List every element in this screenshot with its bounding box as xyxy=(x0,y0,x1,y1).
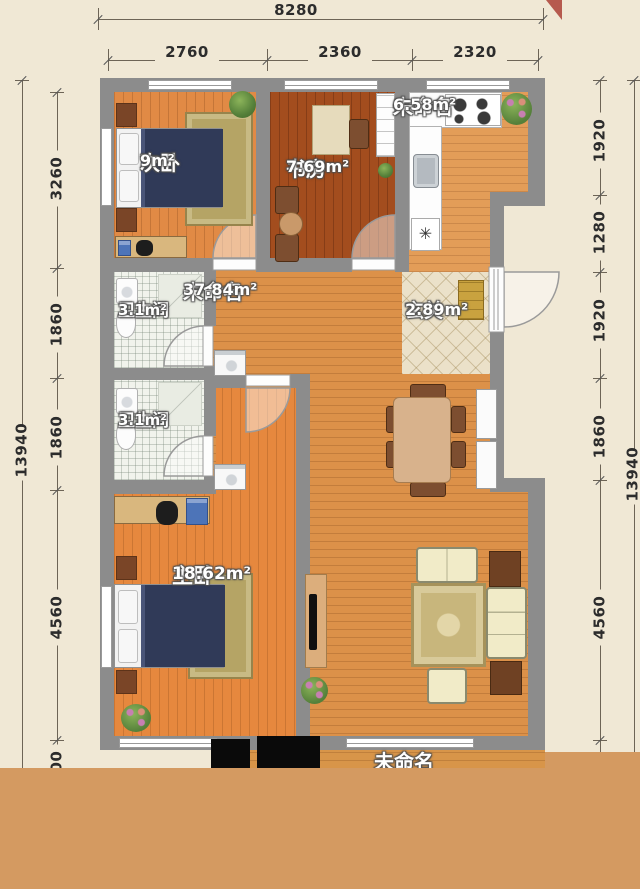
dim-label: 13940 xyxy=(14,425,31,481)
blue-drawers[interactable] xyxy=(186,498,208,525)
armchair-brown[interactable] xyxy=(275,234,299,262)
wall-cabinet[interactable] xyxy=(476,441,497,489)
round-table[interactable] xyxy=(279,212,303,236)
armchair[interactable] xyxy=(427,668,467,704)
nightstand[interactable] xyxy=(116,208,137,232)
plant[interactable] xyxy=(229,91,256,118)
entry-door-arc xyxy=(504,272,559,327)
study-door-slab xyxy=(352,259,395,270)
dim-label: 1280 xyxy=(592,205,609,261)
dim-label: 2360 xyxy=(308,44,372,61)
loveseat[interactable] xyxy=(416,547,478,583)
dim-label: 1920 xyxy=(592,293,609,349)
sofa-three-seat[interactable] xyxy=(486,587,527,659)
bath1-door-slab xyxy=(203,326,213,366)
bedroom2-door-slab xyxy=(213,259,256,270)
black-fixture xyxy=(257,736,320,768)
floor-plan-canvas: ✳ xyxy=(0,0,640,889)
dim-line-right-overall xyxy=(634,80,635,768)
dim-label: 4560 xyxy=(592,590,609,646)
plant-flower[interactable] xyxy=(121,704,151,732)
wall-cabinet[interactable] xyxy=(476,389,497,439)
master-door-arc xyxy=(246,388,290,432)
dim-label: 4560 xyxy=(49,590,66,646)
dim-label: 13940 xyxy=(625,449,640,505)
washing-machine[interactable] xyxy=(214,350,246,376)
nightstand[interactable] xyxy=(116,556,137,580)
side-table[interactable] xyxy=(490,661,522,695)
entry-door-slab xyxy=(489,267,504,332)
plant-flower[interactable] xyxy=(301,677,328,704)
living-rug[interactable] xyxy=(411,583,486,667)
room-area: 6.58m² xyxy=(393,96,456,114)
black-fixture xyxy=(211,739,250,768)
dim-line-top-overall xyxy=(98,19,543,20)
tv[interactable] xyxy=(309,594,317,650)
side-table[interactable] xyxy=(489,551,521,587)
dim-label: 2320 xyxy=(443,44,507,61)
pillow xyxy=(119,170,139,202)
pillow xyxy=(119,133,139,165)
bath2-door-arc xyxy=(164,436,204,476)
dining-table[interactable] xyxy=(393,397,451,483)
desk-item-blue[interactable] xyxy=(118,240,131,256)
dishwasher-icon[interactable]: ✳ xyxy=(411,218,440,251)
dim-label: 1860 xyxy=(592,409,609,465)
nightstand[interactable] xyxy=(116,103,137,127)
room-area: 37.84m² xyxy=(183,281,257,299)
dim-label: 2760 xyxy=(155,44,219,61)
room-area: 7.69m² xyxy=(286,158,349,176)
bath1-door-arc xyxy=(164,326,204,366)
dishwasher-symbol: ✳ xyxy=(419,224,432,243)
pillow xyxy=(118,590,138,624)
study-chair[interactable] xyxy=(349,119,369,149)
dining-chair[interactable] xyxy=(451,406,466,433)
nightstand[interactable] xyxy=(116,670,137,694)
study-door-arc xyxy=(352,215,395,258)
bed-blanket xyxy=(141,585,225,667)
washing-machine[interactable] xyxy=(214,464,246,490)
pillow xyxy=(118,629,138,663)
room-area: 18.62m² xyxy=(172,565,251,585)
armchair-brown[interactable] xyxy=(275,186,299,214)
room-area: 2.89m² xyxy=(405,301,468,319)
dim-label: 1920 xyxy=(592,113,609,169)
plant-flower[interactable] xyxy=(501,93,532,125)
kitchen-sink[interactable] xyxy=(413,154,439,188)
crop-band-bottom xyxy=(0,768,640,889)
dining-chair[interactable] xyxy=(451,441,466,468)
dim-label: 8280 xyxy=(264,2,328,19)
room-area: 9m² xyxy=(140,152,175,170)
master-bed[interactable] xyxy=(114,584,224,668)
crop-band-right xyxy=(545,752,640,769)
dining-chair[interactable] xyxy=(410,482,446,497)
dim-label: 1860 xyxy=(49,297,66,353)
dim-label: 1860 xyxy=(49,410,66,466)
room-area: 3.1m² xyxy=(118,302,167,319)
desk-chair[interactable] xyxy=(156,501,178,525)
study-desk[interactable] xyxy=(312,105,350,155)
bath2-door-slab xyxy=(203,436,213,476)
plant-small[interactable] xyxy=(378,163,393,178)
dim-label: 3260 xyxy=(49,151,66,207)
desk-chair[interactable] xyxy=(136,240,153,256)
room-area: 3.1m² xyxy=(118,412,167,429)
master-door-slab xyxy=(246,375,290,386)
